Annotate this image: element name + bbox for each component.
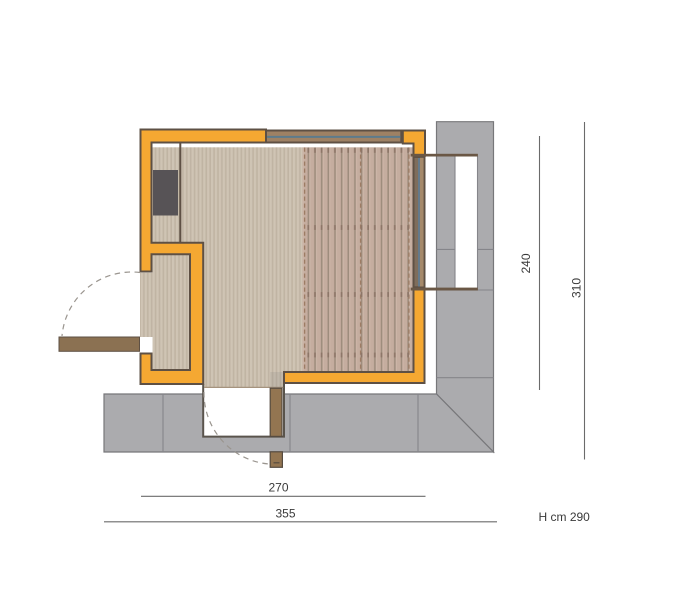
svg-text:355: 355 xyxy=(275,506,295,520)
svg-text:H cm 290: H cm 290 xyxy=(539,510,591,524)
svg-text:240: 240 xyxy=(519,253,533,273)
svg-text:310: 310 xyxy=(570,278,584,298)
svg-text:270: 270 xyxy=(268,480,288,494)
